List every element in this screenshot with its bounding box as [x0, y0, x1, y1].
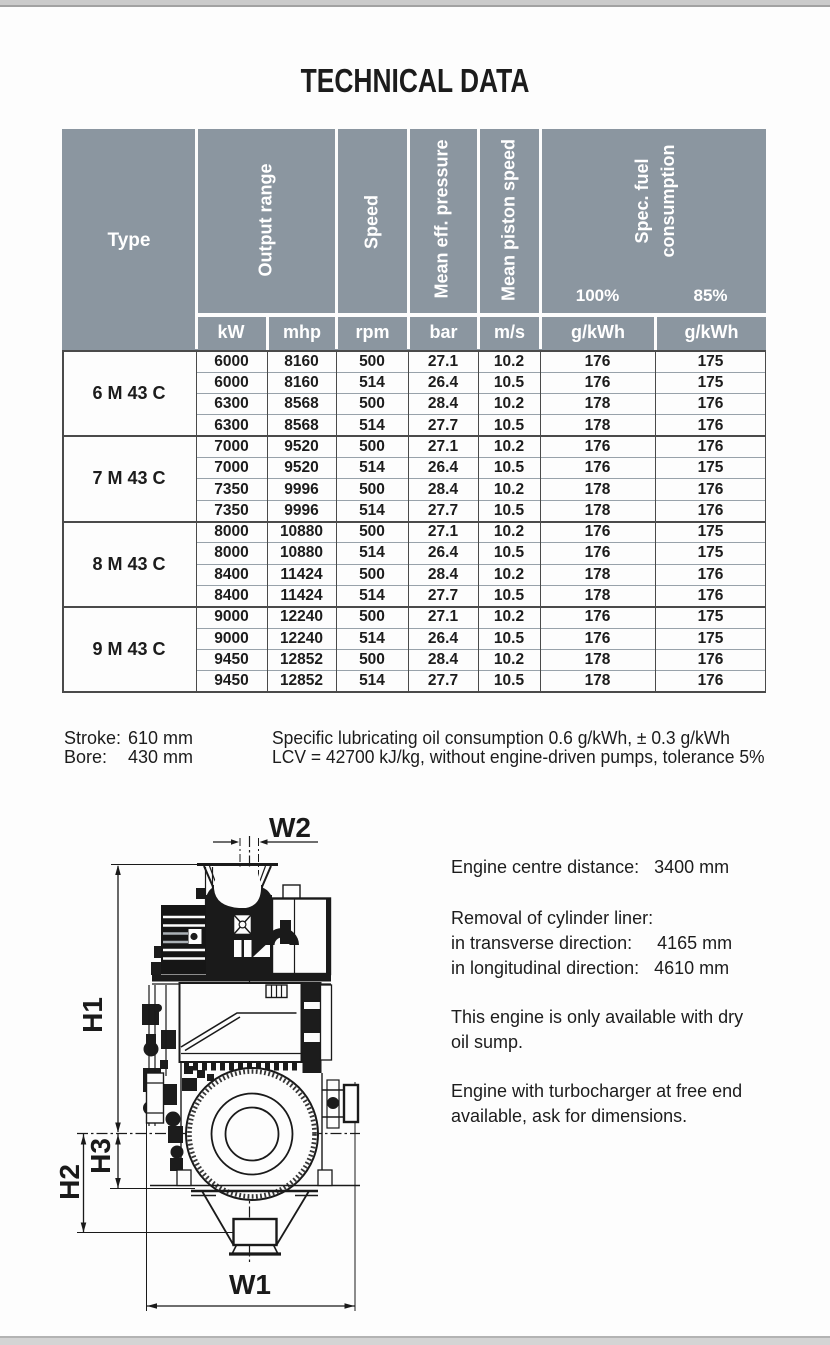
svg-text:W1: W1	[229, 1269, 271, 1300]
svg-text:H2: H2	[54, 1164, 85, 1200]
svg-text:H3: H3	[85, 1138, 116, 1174]
svg-text:W2: W2	[269, 812, 311, 843]
svg-text:H1: H1	[77, 997, 108, 1033]
